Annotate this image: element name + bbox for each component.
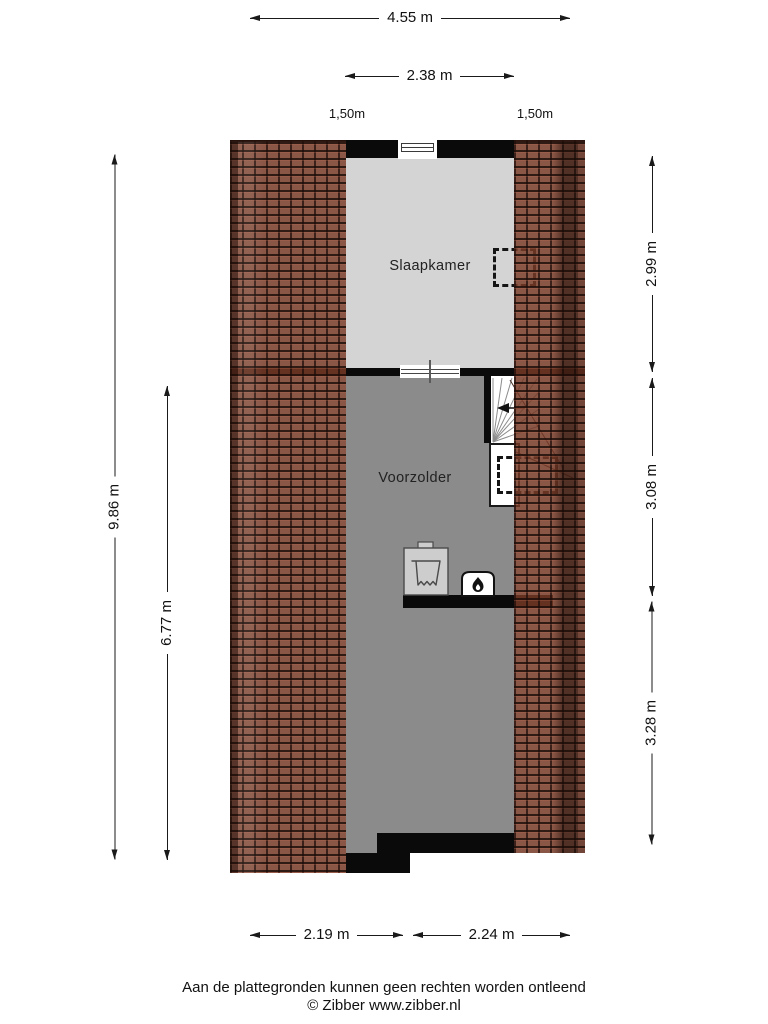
dimension-bottom-right: 2.24 m bbox=[413, 927, 570, 943]
window-frame bbox=[401, 143, 434, 152]
dimension-line bbox=[522, 935, 570, 936]
washing-machine-icon bbox=[403, 541, 449, 596]
height-marker-right: 1,50m bbox=[508, 106, 562, 121]
dimension-line bbox=[441, 18, 570, 19]
dimension-right-middle: 3.08 m bbox=[644, 378, 660, 596]
dimension-right-lower: 3.28 m bbox=[644, 602, 660, 845]
dimension-line bbox=[250, 935, 296, 936]
dimension-line bbox=[652, 295, 653, 372]
roof-band-left bbox=[230, 140, 346, 873]
dimension-bottom-left: 2.19 m bbox=[250, 927, 403, 943]
dimension-line bbox=[357, 935, 403, 936]
dimension-line bbox=[413, 935, 461, 936]
dimension-line bbox=[167, 654, 168, 860]
dimension-line bbox=[652, 518, 653, 596]
dimension-label: 3.28 m bbox=[644, 692, 660, 754]
dimension-label: 2.99 m bbox=[644, 233, 660, 295]
dimension-label: 2.38 m bbox=[399, 68, 461, 84]
dimension-label: 4.55 m bbox=[379, 10, 441, 26]
dimension-line bbox=[250, 18, 379, 19]
dimension-label: 6.77 m bbox=[159, 592, 175, 654]
dimension-line bbox=[114, 538, 115, 860]
wall-top-right bbox=[437, 140, 514, 158]
floorplan-page: Slaapkamer Voorzolder bbox=[0, 0, 768, 1024]
window-center-tick bbox=[429, 360, 431, 383]
roof-band-right bbox=[514, 140, 585, 853]
boiler-flame-icon bbox=[460, 570, 496, 597]
dimension-label: 9.86 m bbox=[107, 476, 123, 538]
dimension-left-total: 9.86 m bbox=[107, 155, 123, 860]
footer-disclaimer: Aan de plattegronden kunnen geen rechten… bbox=[0, 979, 768, 997]
dimension-right-bedroom: 2.99 m bbox=[644, 156, 660, 372]
dimension-line bbox=[114, 154, 115, 476]
dimension-line bbox=[652, 378, 653, 456]
wall-bottom-lower-step bbox=[346, 853, 410, 873]
dimension-label: 3.08 m bbox=[644, 456, 660, 518]
dimension-line bbox=[460, 76, 514, 77]
dimension-line bbox=[651, 601, 652, 692]
window-icon-top bbox=[398, 136, 437, 159]
room-label-voorzolder: Voorzolder bbox=[331, 470, 499, 486]
room-slaapkamer: Slaapkamer bbox=[346, 158, 514, 368]
wall-top-left bbox=[346, 140, 398, 158]
wall-bottom-upper-step bbox=[377, 833, 514, 853]
dimension-line bbox=[345, 76, 399, 77]
wall-stairs-side bbox=[484, 376, 491, 443]
dimension-top-overall: 4.55 m bbox=[250, 10, 570, 26]
room-voorzolder-extension bbox=[346, 833, 377, 853]
dimension-line bbox=[651, 754, 652, 845]
room-label-slaapkamer: Slaapkamer bbox=[346, 258, 514, 274]
height-marker-left: 1,50m bbox=[320, 106, 374, 121]
dimension-line bbox=[652, 156, 653, 233]
dimension-top-bedroom: 2.38 m bbox=[345, 68, 514, 84]
dimension-line bbox=[167, 386, 168, 592]
dimension-label: 2.19 m bbox=[296, 927, 358, 943]
window-icon-internal-wall bbox=[400, 365, 460, 378]
footer-copyright: © Zibber www.zibber.nl bbox=[0, 997, 768, 1014]
dimension-left-attic: 6.77 m bbox=[159, 386, 175, 860]
footer: Aan de plattegronden kunnen geen rechten… bbox=[0, 979, 768, 1014]
dimension-label: 2.24 m bbox=[461, 927, 523, 943]
